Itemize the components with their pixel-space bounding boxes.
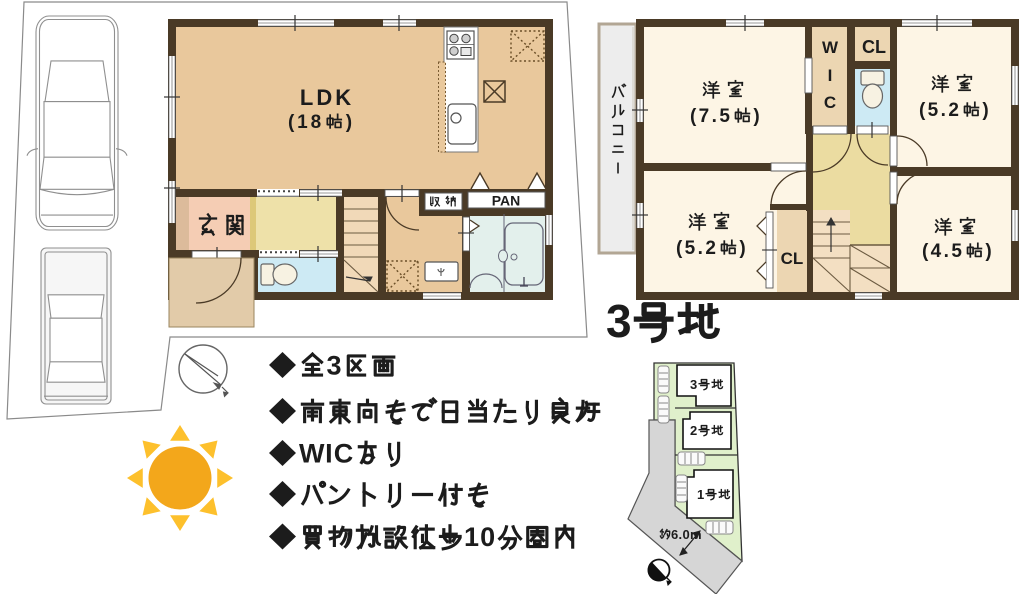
svg-text:W: W: [299, 438, 325, 468]
svg-text:2: 2: [948, 100, 959, 121]
svg-text:): ): [753, 106, 759, 127]
svg-text:7: 7: [699, 106, 710, 127]
svg-text:(: (: [288, 112, 295, 133]
svg-text:): ): [985, 241, 991, 262]
svg-text:): ): [982, 100, 988, 121]
svg-text:.: .: [712, 106, 717, 127]
svg-text:5: 5: [928, 100, 939, 121]
svg-text:5: 5: [951, 241, 962, 262]
svg-text:2: 2: [705, 238, 716, 259]
svg-text:(: (: [690, 106, 697, 127]
svg-text:C: C: [334, 438, 354, 468]
svg-text:CL: CL: [781, 249, 804, 268]
svg-text:6: 6: [671, 527, 678, 542]
svg-text:.: .: [941, 100, 946, 121]
svg-text:3: 3: [606, 295, 632, 347]
svg-text:5: 5: [719, 106, 730, 127]
svg-text:2: 2: [690, 423, 697, 438]
svg-text:LDK: LDK: [300, 85, 354, 110]
svg-text:1: 1: [464, 522, 479, 552]
svg-text:.: .: [698, 238, 703, 259]
svg-text:3: 3: [690, 377, 697, 392]
svg-text:I: I: [325, 438, 333, 468]
svg-text:PAN: PAN: [492, 193, 521, 209]
svg-text:1: 1: [297, 112, 308, 133]
svg-text:C: C: [824, 93, 836, 112]
svg-text:W: W: [822, 38, 839, 57]
svg-text:0: 0: [682, 527, 689, 542]
svg-text:): ): [739, 238, 745, 259]
svg-text:(: (: [922, 241, 929, 262]
svg-text:I: I: [828, 66, 833, 85]
svg-text:(: (: [676, 238, 683, 259]
svg-text:m: m: [690, 527, 702, 542]
svg-text:5: 5: [685, 238, 696, 259]
svg-text:8: 8: [311, 112, 322, 133]
svg-text:): ): [346, 112, 352, 133]
svg-text:0: 0: [480, 522, 495, 552]
svg-text:1: 1: [697, 487, 704, 502]
svg-text:4: 4: [931, 241, 942, 262]
svg-text:(: (: [919, 100, 926, 121]
svg-text:.: .: [944, 241, 949, 262]
svg-text:CL: CL: [862, 37, 886, 57]
svg-text:3: 3: [327, 350, 342, 380]
